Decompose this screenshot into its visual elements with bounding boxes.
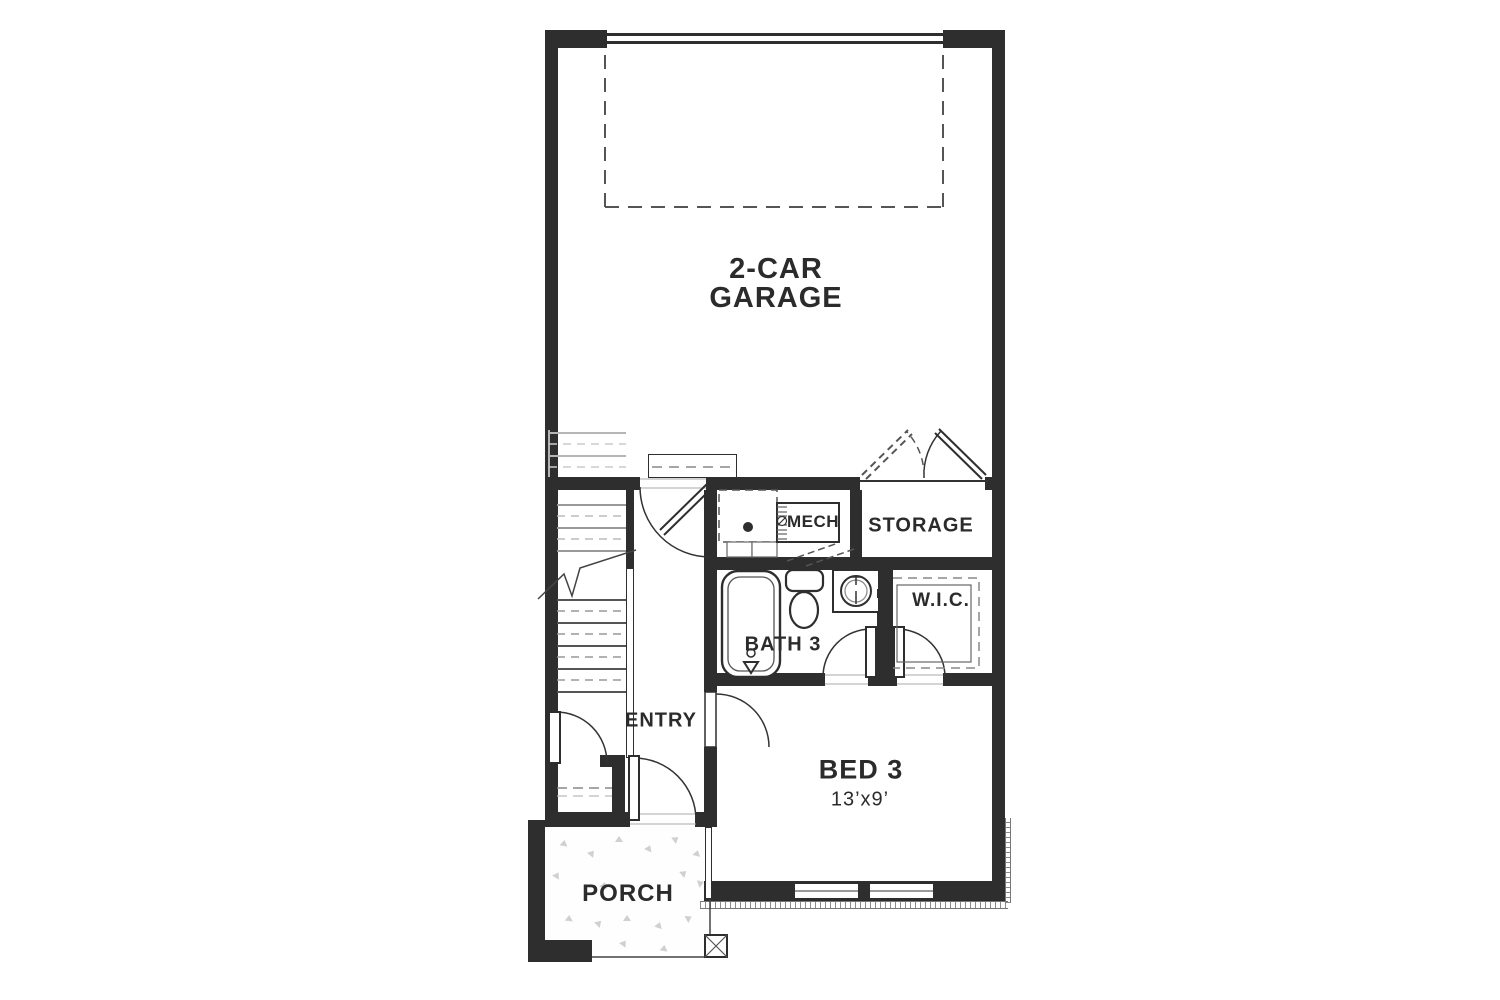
garage-label-line2: GARAGE: [709, 284, 842, 313]
front-door: [629, 756, 696, 824]
appliance-space: [719, 490, 777, 542]
bed3-dimensions: 13’x9’: [831, 789, 889, 812]
floor-plan: 2-CAR GARAGE MECH STORAGE BATH 3 W.I.C. …: [0, 0, 1500, 1000]
bathtub-icon: [722, 571, 780, 677]
stair-ghost-treads: [549, 430, 626, 477]
garage-label-line1: 2-CAR: [709, 255, 842, 284]
mech-label: MECH: [787, 512, 839, 532]
staircase: [538, 505, 636, 692]
bed3-door: [705, 692, 769, 747]
sink-vanity-icon: [833, 570, 881, 612]
floor-drain-icon: [743, 522, 753, 532]
entry-label: ENTRY: [625, 710, 697, 733]
wic-label: W.I.C.: [912, 590, 970, 612]
storage-double-doors: [860, 429, 988, 481]
storage-label: STORAGE: [868, 515, 974, 538]
bifold-door: [787, 543, 857, 566]
coat-closet-door: [549, 712, 612, 796]
floorplan-linework: [0, 0, 1500, 1000]
stair-break-line: [538, 550, 636, 599]
bed3-label: BED 3: [819, 755, 904, 786]
bath3-label: BATH 3: [745, 634, 822, 657]
garage-label: 2-CAR GARAGE: [709, 255, 842, 313]
porch-label: PORCH: [582, 880, 674, 908]
bath3-door: [823, 627, 876, 684]
toilet-icon: [786, 570, 823, 628]
wic-door: [894, 627, 945, 684]
overhead-door-clearance: [605, 55, 943, 207]
garage-entry-door: [640, 479, 712, 557]
